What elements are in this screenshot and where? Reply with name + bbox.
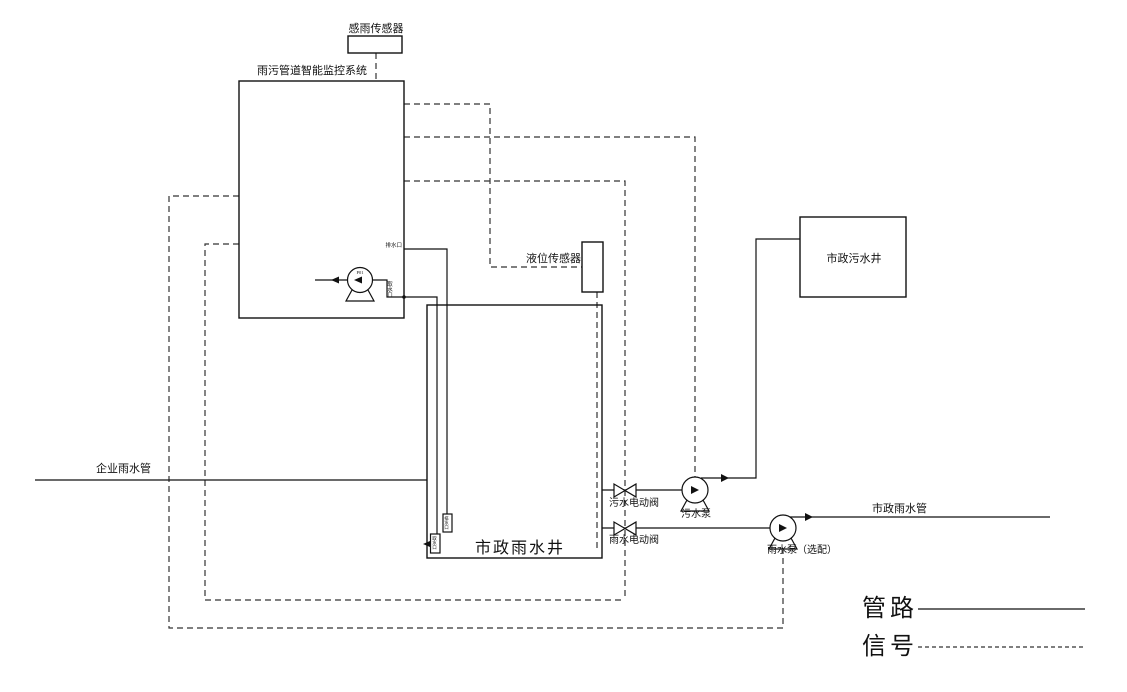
well-drain-port-label: 排水口	[444, 515, 450, 531]
sewage-valve-label: 污水电动阀	[609, 496, 659, 509]
rain-pump-symbol	[769, 515, 797, 549]
signal-level-sensor	[404, 104, 582, 267]
well-drain-port-box: 排水口	[443, 514, 452, 532]
flow-arrow	[805, 513, 813, 521]
rain-valve-label: 雨水电动阀	[609, 533, 659, 546]
well-intake-port-label: 取水口	[432, 536, 438, 551]
flow-arrow	[721, 474, 729, 482]
rain-well-label: 市政雨水井	[475, 539, 565, 557]
diagram-canvas: P01 排水口 取水口 感雨传感器 雨污管道智能监控系统 液位传感器 市政污水井…	[0, 0, 1127, 692]
well-intake-port-box: 取水口	[423, 534, 440, 553]
rain-well-box	[427, 305, 602, 558]
enterprise-rain-pipe-label: 企业雨水管	[96, 461, 151, 475]
sewage-well-label: 市政污水井	[827, 251, 882, 265]
signal-sewage-pump	[404, 137, 695, 477]
municipal-rain-pipe-label: 市政雨水管	[872, 501, 927, 515]
level-sensor-box	[582, 242, 603, 292]
sewage-pump-label: 污水泵	[681, 508, 711, 520]
drain-port-label: 排水口	[385, 241, 402, 249]
sewage-discharge-line	[701, 239, 800, 478]
rain-pump-label: 雨水泵（选配）	[767, 543, 837, 556]
signal-rain-pump-loop	[169, 196, 783, 628]
legend-signal-label: 信号	[862, 633, 918, 660]
monitor-system-box	[239, 81, 404, 318]
flow-arrow	[331, 277, 339, 284]
pump-tag-label: P01	[356, 270, 363, 275]
rain-sensor-box	[348, 36, 402, 53]
piping-diagram: P01 排水口 取水口 感雨传感器 雨污管道智能监控系统 液位传感器 市政污水井…	[0, 0, 1127, 692]
monitor-system-label: 雨污管道智能监控系统	[257, 63, 367, 77]
intake-port-label: 取水口	[386, 281, 393, 299]
drain-pipe	[404, 249, 447, 514]
system-pump-symbol: P01	[331, 268, 374, 302]
legend: 管路 信号	[862, 595, 1085, 660]
sewage-pump-symbol	[681, 477, 709, 511]
level-sensor-label: 液位传感器	[526, 251, 581, 265]
legend-pipe-label: 管路	[862, 595, 918, 622]
rain-sensor-label: 感雨传感器	[349, 22, 404, 35]
